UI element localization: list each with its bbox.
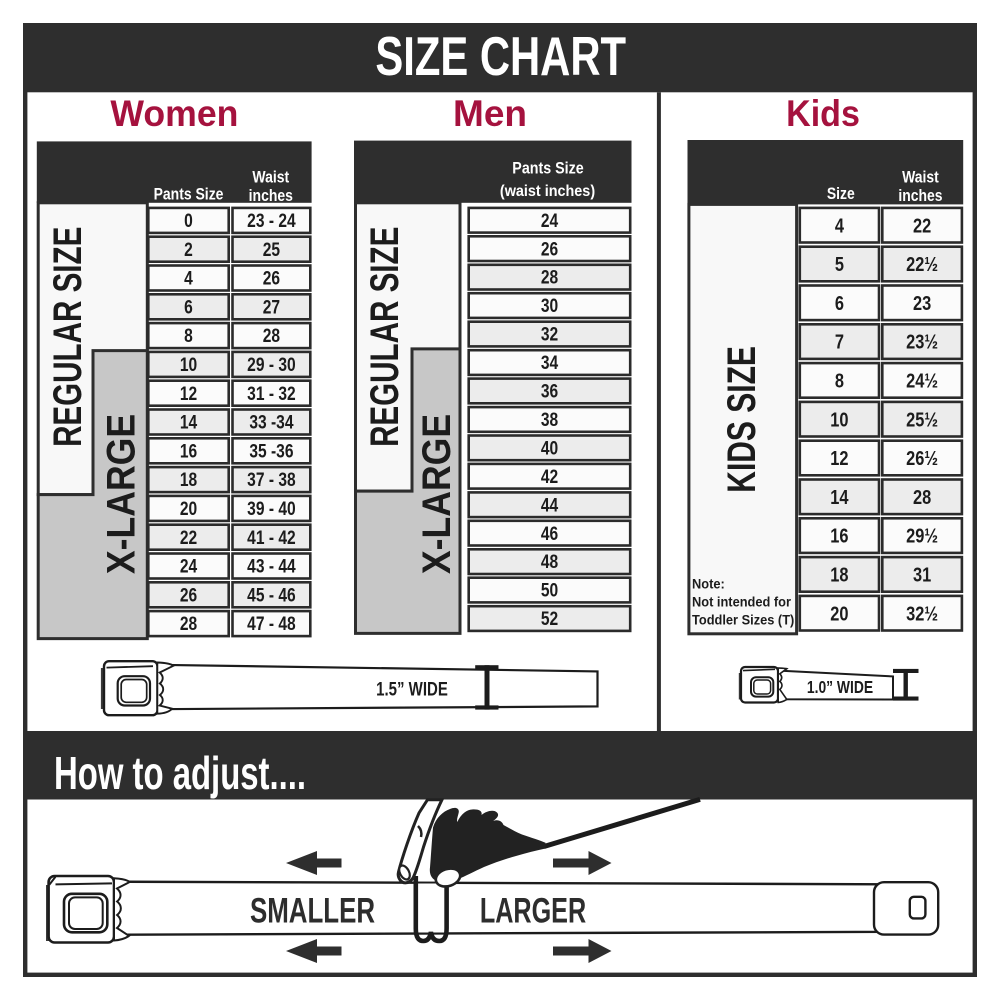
svg-text:50: 50 bbox=[541, 579, 558, 601]
svg-text:26½: 26½ bbox=[906, 447, 938, 470]
svg-text:Waist: Waist bbox=[902, 168, 939, 187]
svg-text:inches: inches bbox=[898, 187, 942, 206]
svg-text:4: 4 bbox=[835, 214, 845, 237]
svg-text:Pants Size: Pants Size bbox=[154, 185, 224, 204]
svg-text:40: 40 bbox=[541, 437, 558, 459]
svg-text:Not intended for: Not intended for bbox=[692, 594, 791, 609]
svg-text:6: 6 bbox=[835, 291, 844, 314]
svg-text:23: 23 bbox=[913, 291, 931, 314]
svg-text:26: 26 bbox=[263, 267, 281, 289]
svg-text:(waist inches): (waist inches) bbox=[500, 182, 595, 200]
svg-text:41 - 42: 41 - 42 bbox=[247, 526, 295, 548]
svg-text:27: 27 bbox=[263, 296, 280, 318]
svg-text:25: 25 bbox=[263, 238, 281, 260]
svg-text:4: 4 bbox=[184, 267, 193, 289]
svg-text:Size: Size bbox=[827, 185, 855, 204]
svg-text:52: 52 bbox=[541, 608, 558, 630]
svg-text:1.0” WIDE: 1.0” WIDE bbox=[807, 677, 873, 697]
svg-text:38: 38 bbox=[541, 408, 559, 430]
svg-text:KIDS SIZE: KIDS SIZE bbox=[720, 346, 764, 493]
svg-text:23½: 23½ bbox=[906, 330, 938, 353]
svg-text:43 - 44: 43 - 44 bbox=[247, 555, 296, 577]
svg-text:Toddler Sizes (T): Toddler Sizes (T) bbox=[692, 612, 794, 627]
svg-text:24: 24 bbox=[180, 555, 198, 577]
svg-text:16: 16 bbox=[830, 524, 848, 547]
svg-text:31 - 32: 31 - 32 bbox=[247, 382, 295, 404]
svg-text:0: 0 bbox=[184, 209, 193, 231]
svg-text:20: 20 bbox=[830, 602, 848, 625]
svg-text:Kids: Kids bbox=[786, 93, 860, 135]
svg-text:12: 12 bbox=[830, 447, 848, 470]
svg-text:46: 46 bbox=[541, 522, 559, 544]
svg-text:Pants Size: Pants Size bbox=[512, 159, 584, 177]
svg-text:SMALLER: SMALLER bbox=[250, 890, 375, 930]
svg-text:31: 31 bbox=[913, 563, 931, 586]
svg-text:48: 48 bbox=[541, 551, 559, 573]
svg-text:8: 8 bbox=[835, 369, 844, 392]
svg-text:34: 34 bbox=[541, 352, 559, 374]
svg-text:20: 20 bbox=[180, 497, 197, 519]
svg-text:26: 26 bbox=[541, 238, 559, 260]
svg-text:39 - 40: 39 - 40 bbox=[247, 497, 295, 519]
svg-text:16: 16 bbox=[180, 440, 198, 462]
svg-text:44: 44 bbox=[541, 494, 559, 516]
svg-text:24: 24 bbox=[541, 209, 559, 231]
svg-text:18: 18 bbox=[180, 469, 198, 491]
svg-text:inches: inches bbox=[249, 187, 294, 206]
svg-text:28: 28 bbox=[541, 266, 559, 288]
svg-text:28: 28 bbox=[180, 613, 198, 635]
svg-text:45 - 46: 45 - 46 bbox=[247, 584, 296, 606]
svg-text:14: 14 bbox=[180, 411, 198, 433]
svg-text:36: 36 bbox=[541, 380, 559, 402]
svg-text:SIZE CHART: SIZE CHART bbox=[375, 26, 626, 87]
svg-text:32: 32 bbox=[541, 323, 558, 345]
svg-text:12: 12 bbox=[180, 382, 197, 404]
svg-text:22: 22 bbox=[180, 526, 197, 548]
svg-text:1.5” WIDE: 1.5” WIDE bbox=[376, 679, 448, 700]
svg-text:22½: 22½ bbox=[906, 253, 938, 276]
svg-text:35 -36: 35 -36 bbox=[249, 440, 293, 462]
svg-text:X-LARGE: X-LARGE bbox=[415, 414, 459, 574]
svg-text:X-LARGE: X-LARGE bbox=[100, 414, 144, 574]
svg-text:23 - 24: 23 - 24 bbox=[247, 209, 296, 231]
svg-text:5: 5 bbox=[835, 253, 844, 276]
svg-text:REGULAR SIZE: REGULAR SIZE bbox=[363, 227, 407, 447]
svg-text:26: 26 bbox=[180, 584, 198, 606]
svg-text:24½: 24½ bbox=[906, 369, 938, 392]
svg-text:28: 28 bbox=[913, 485, 931, 508]
svg-text:47 - 48: 47 - 48 bbox=[247, 613, 296, 635]
svg-text:REGULAR SIZE: REGULAR SIZE bbox=[46, 227, 90, 447]
svg-text:29 - 30: 29 - 30 bbox=[247, 353, 295, 375]
svg-text:32½: 32½ bbox=[906, 602, 938, 625]
svg-text:Waist: Waist bbox=[252, 168, 289, 187]
svg-text:LARGER: LARGER bbox=[480, 891, 586, 930]
svg-text:22: 22 bbox=[913, 214, 931, 237]
svg-text:37 - 38: 37 - 38 bbox=[247, 469, 296, 491]
svg-text:2: 2 bbox=[184, 238, 193, 260]
svg-text:Men: Men bbox=[453, 93, 527, 134]
svg-text:Women: Women bbox=[110, 93, 238, 135]
svg-text:29½: 29½ bbox=[906, 524, 938, 547]
svg-text:7: 7 bbox=[835, 330, 844, 353]
svg-text:8: 8 bbox=[184, 325, 193, 347]
svg-text:10: 10 bbox=[830, 408, 848, 431]
svg-text:6: 6 bbox=[184, 296, 193, 318]
svg-text:How to adjust....: How to adjust.... bbox=[54, 749, 306, 800]
svg-text:18: 18 bbox=[830, 563, 848, 586]
svg-text:14: 14 bbox=[830, 485, 849, 508]
svg-text:25½: 25½ bbox=[906, 408, 938, 431]
svg-text:33 -34: 33 -34 bbox=[249, 411, 293, 433]
svg-text:Note:: Note: bbox=[692, 576, 725, 591]
svg-text:42: 42 bbox=[541, 465, 558, 487]
svg-text:10: 10 bbox=[180, 353, 197, 375]
svg-text:28: 28 bbox=[263, 325, 281, 347]
svg-text:30: 30 bbox=[541, 295, 558, 317]
